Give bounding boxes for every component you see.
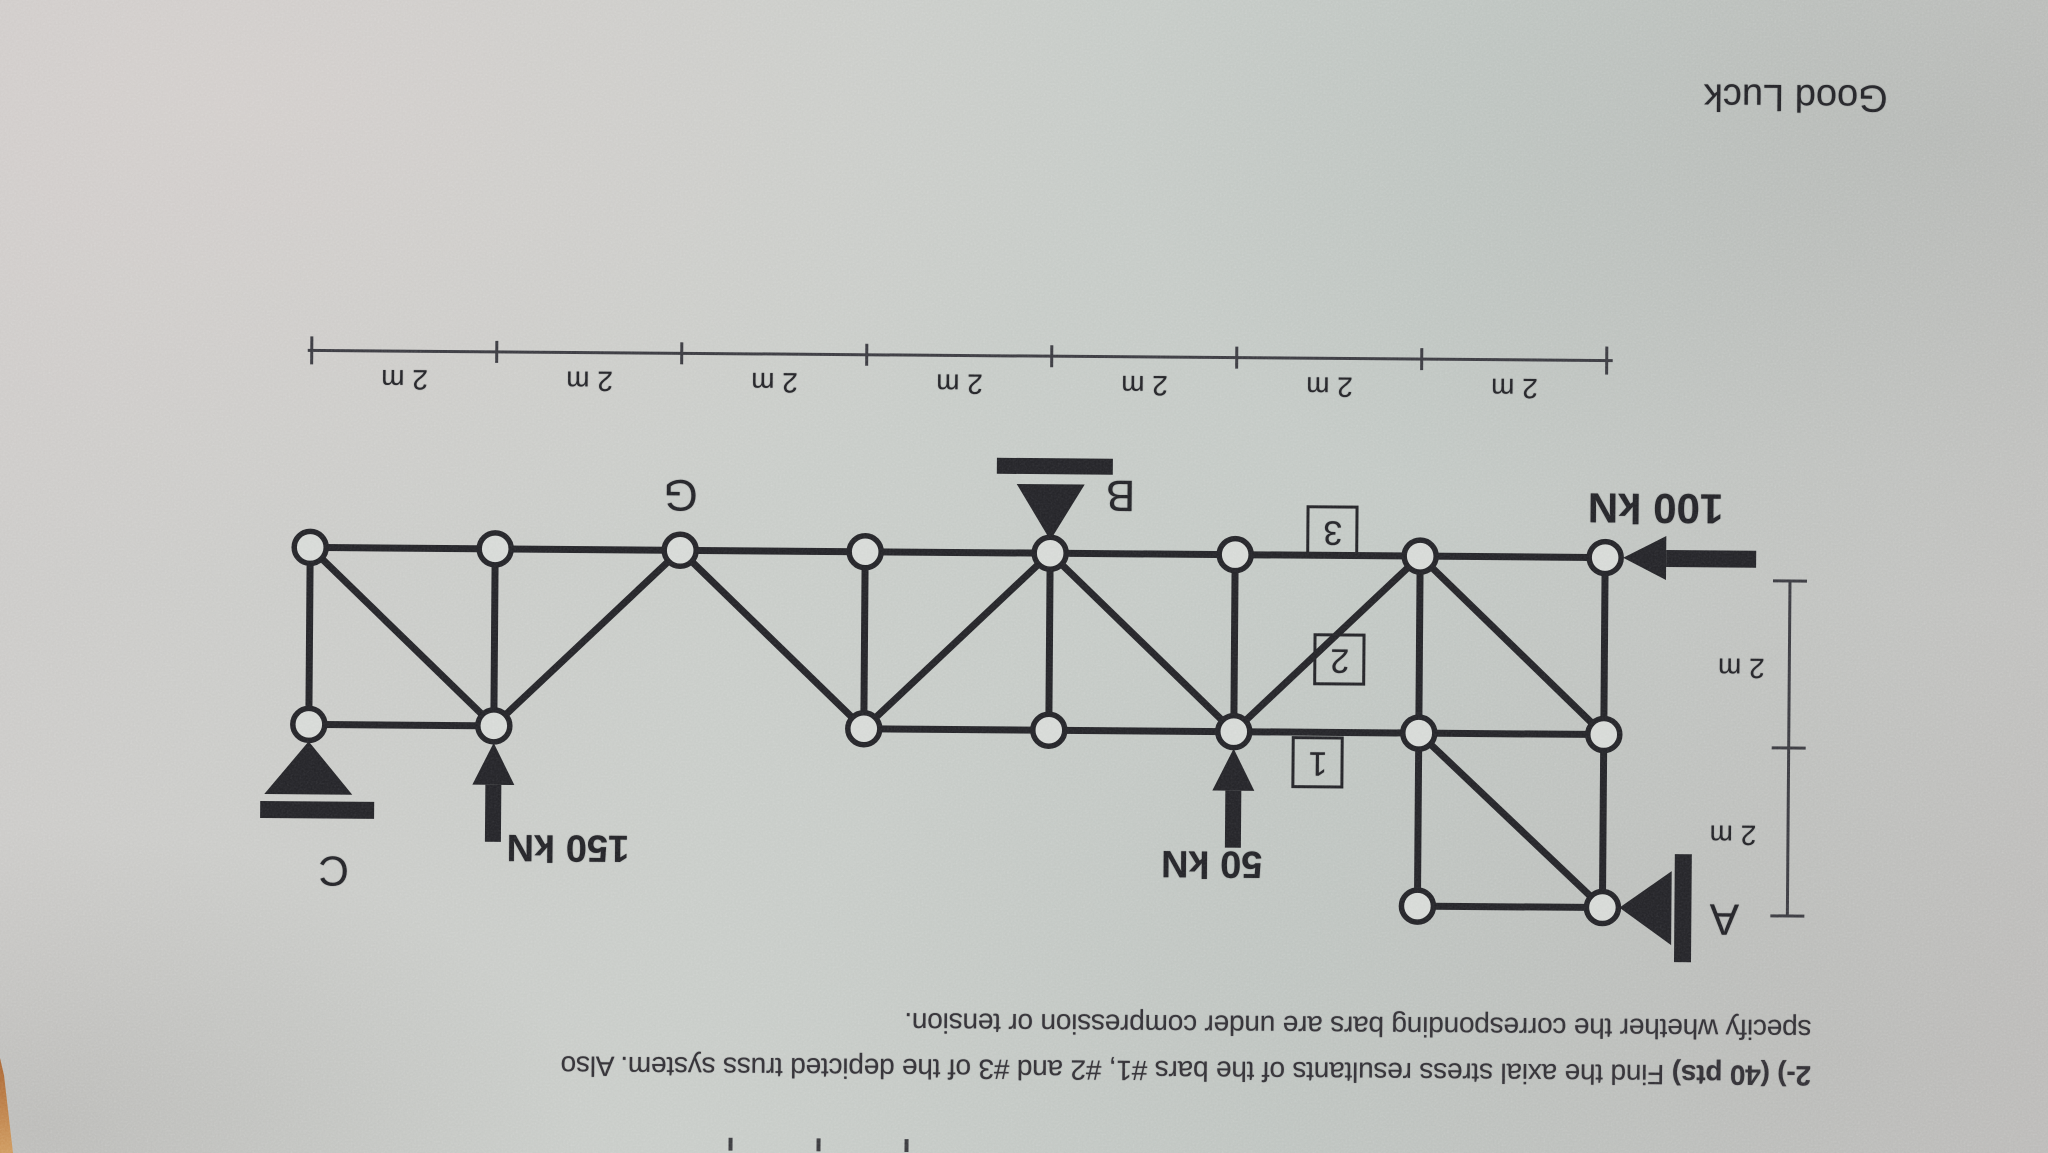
support-label-C: C <box>318 849 349 891</box>
joint-label-G: G <box>663 472 698 516</box>
dimension-label-2m: 2 m <box>1710 820 1757 848</box>
load-label-2: 50 kN <box>1161 844 1263 883</box>
dimension-label-2m: 2 m <box>936 369 983 397</box>
labels-layer: 2-) (40 pts) Find the axial stress resul… <box>0 0 2048 1153</box>
dimension-label-2m: 2 m <box>381 365 428 393</box>
dimension-label-2m: 2 m <box>566 366 613 394</box>
dimension-label-2m: 2 m <box>1121 371 1168 399</box>
bar-marker-number: 1 <box>1308 743 1327 782</box>
bar-marker-box-1: 1 <box>1291 736 1343 788</box>
support-label-A: A <box>1709 896 1739 940</box>
paper-content: 2-) (40 pts) Find the axial stress resul… <box>0 0 2048 1153</box>
bar-marker-number: 3 <box>1323 512 1342 551</box>
bar-marker-box-3: 3 <box>1306 505 1358 557</box>
exam-paper-photo: 2-) (40 pts) Find the axial stress resul… <box>0 0 2048 1153</box>
good-luck-note: Good Luck <box>1704 77 1888 116</box>
dimension-label-2m: 2 m <box>751 368 798 396</box>
dimension-label-2m: 2 m <box>1491 374 1538 402</box>
problem-statement-line2: specify whether the corresponding bars a… <box>351 999 1811 1048</box>
support-label-B: B <box>1106 473 1136 517</box>
problem-text-line1: Find the axial stress resultants of the … <box>561 1050 1672 1090</box>
bar-marker-number: 2 <box>1330 640 1349 679</box>
dimension-label-2m: 2 m <box>1306 372 1353 400</box>
load-label-1: 150 kN <box>506 828 629 867</box>
bar-marker-box-2: 2 <box>1313 633 1365 685</box>
problem-statement-line1: 2-) (40 pts) Find the axial stress resul… <box>351 1045 1811 1094</box>
problem-number: 2-) (40 pts) <box>1672 1059 1811 1091</box>
dimension-label-2m: 2 m <box>1718 653 1765 681</box>
load-label-0: 100 kN <box>1588 486 1724 529</box>
